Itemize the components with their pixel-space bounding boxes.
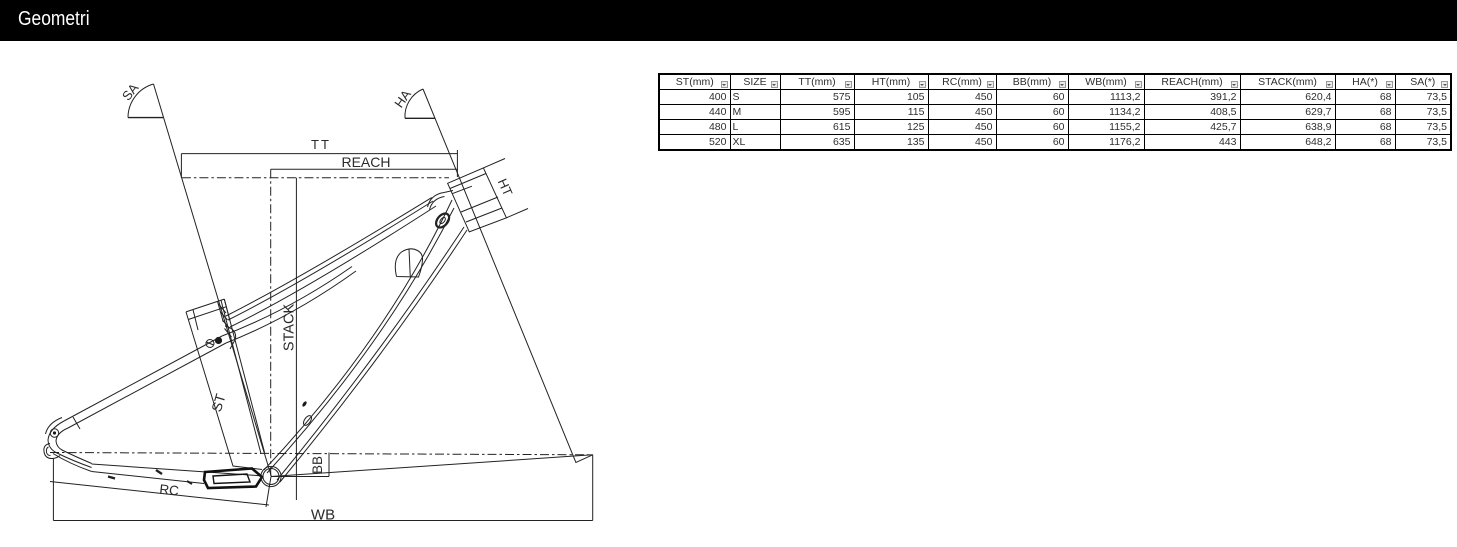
svg-text:SA: SA bbox=[119, 80, 142, 103]
svg-text:RC: RC bbox=[159, 482, 180, 499]
svg-text:BB: BB bbox=[310, 456, 325, 474]
svg-text:HA: HA bbox=[391, 87, 414, 111]
svg-text:TT: TT bbox=[311, 137, 331, 152]
svg-text:HT: HT bbox=[495, 176, 516, 198]
svg-text:WB: WB bbox=[311, 507, 335, 524]
svg-text:REACH: REACH bbox=[341, 154, 390, 170]
svg-text:STACK: STACK bbox=[282, 304, 298, 352]
